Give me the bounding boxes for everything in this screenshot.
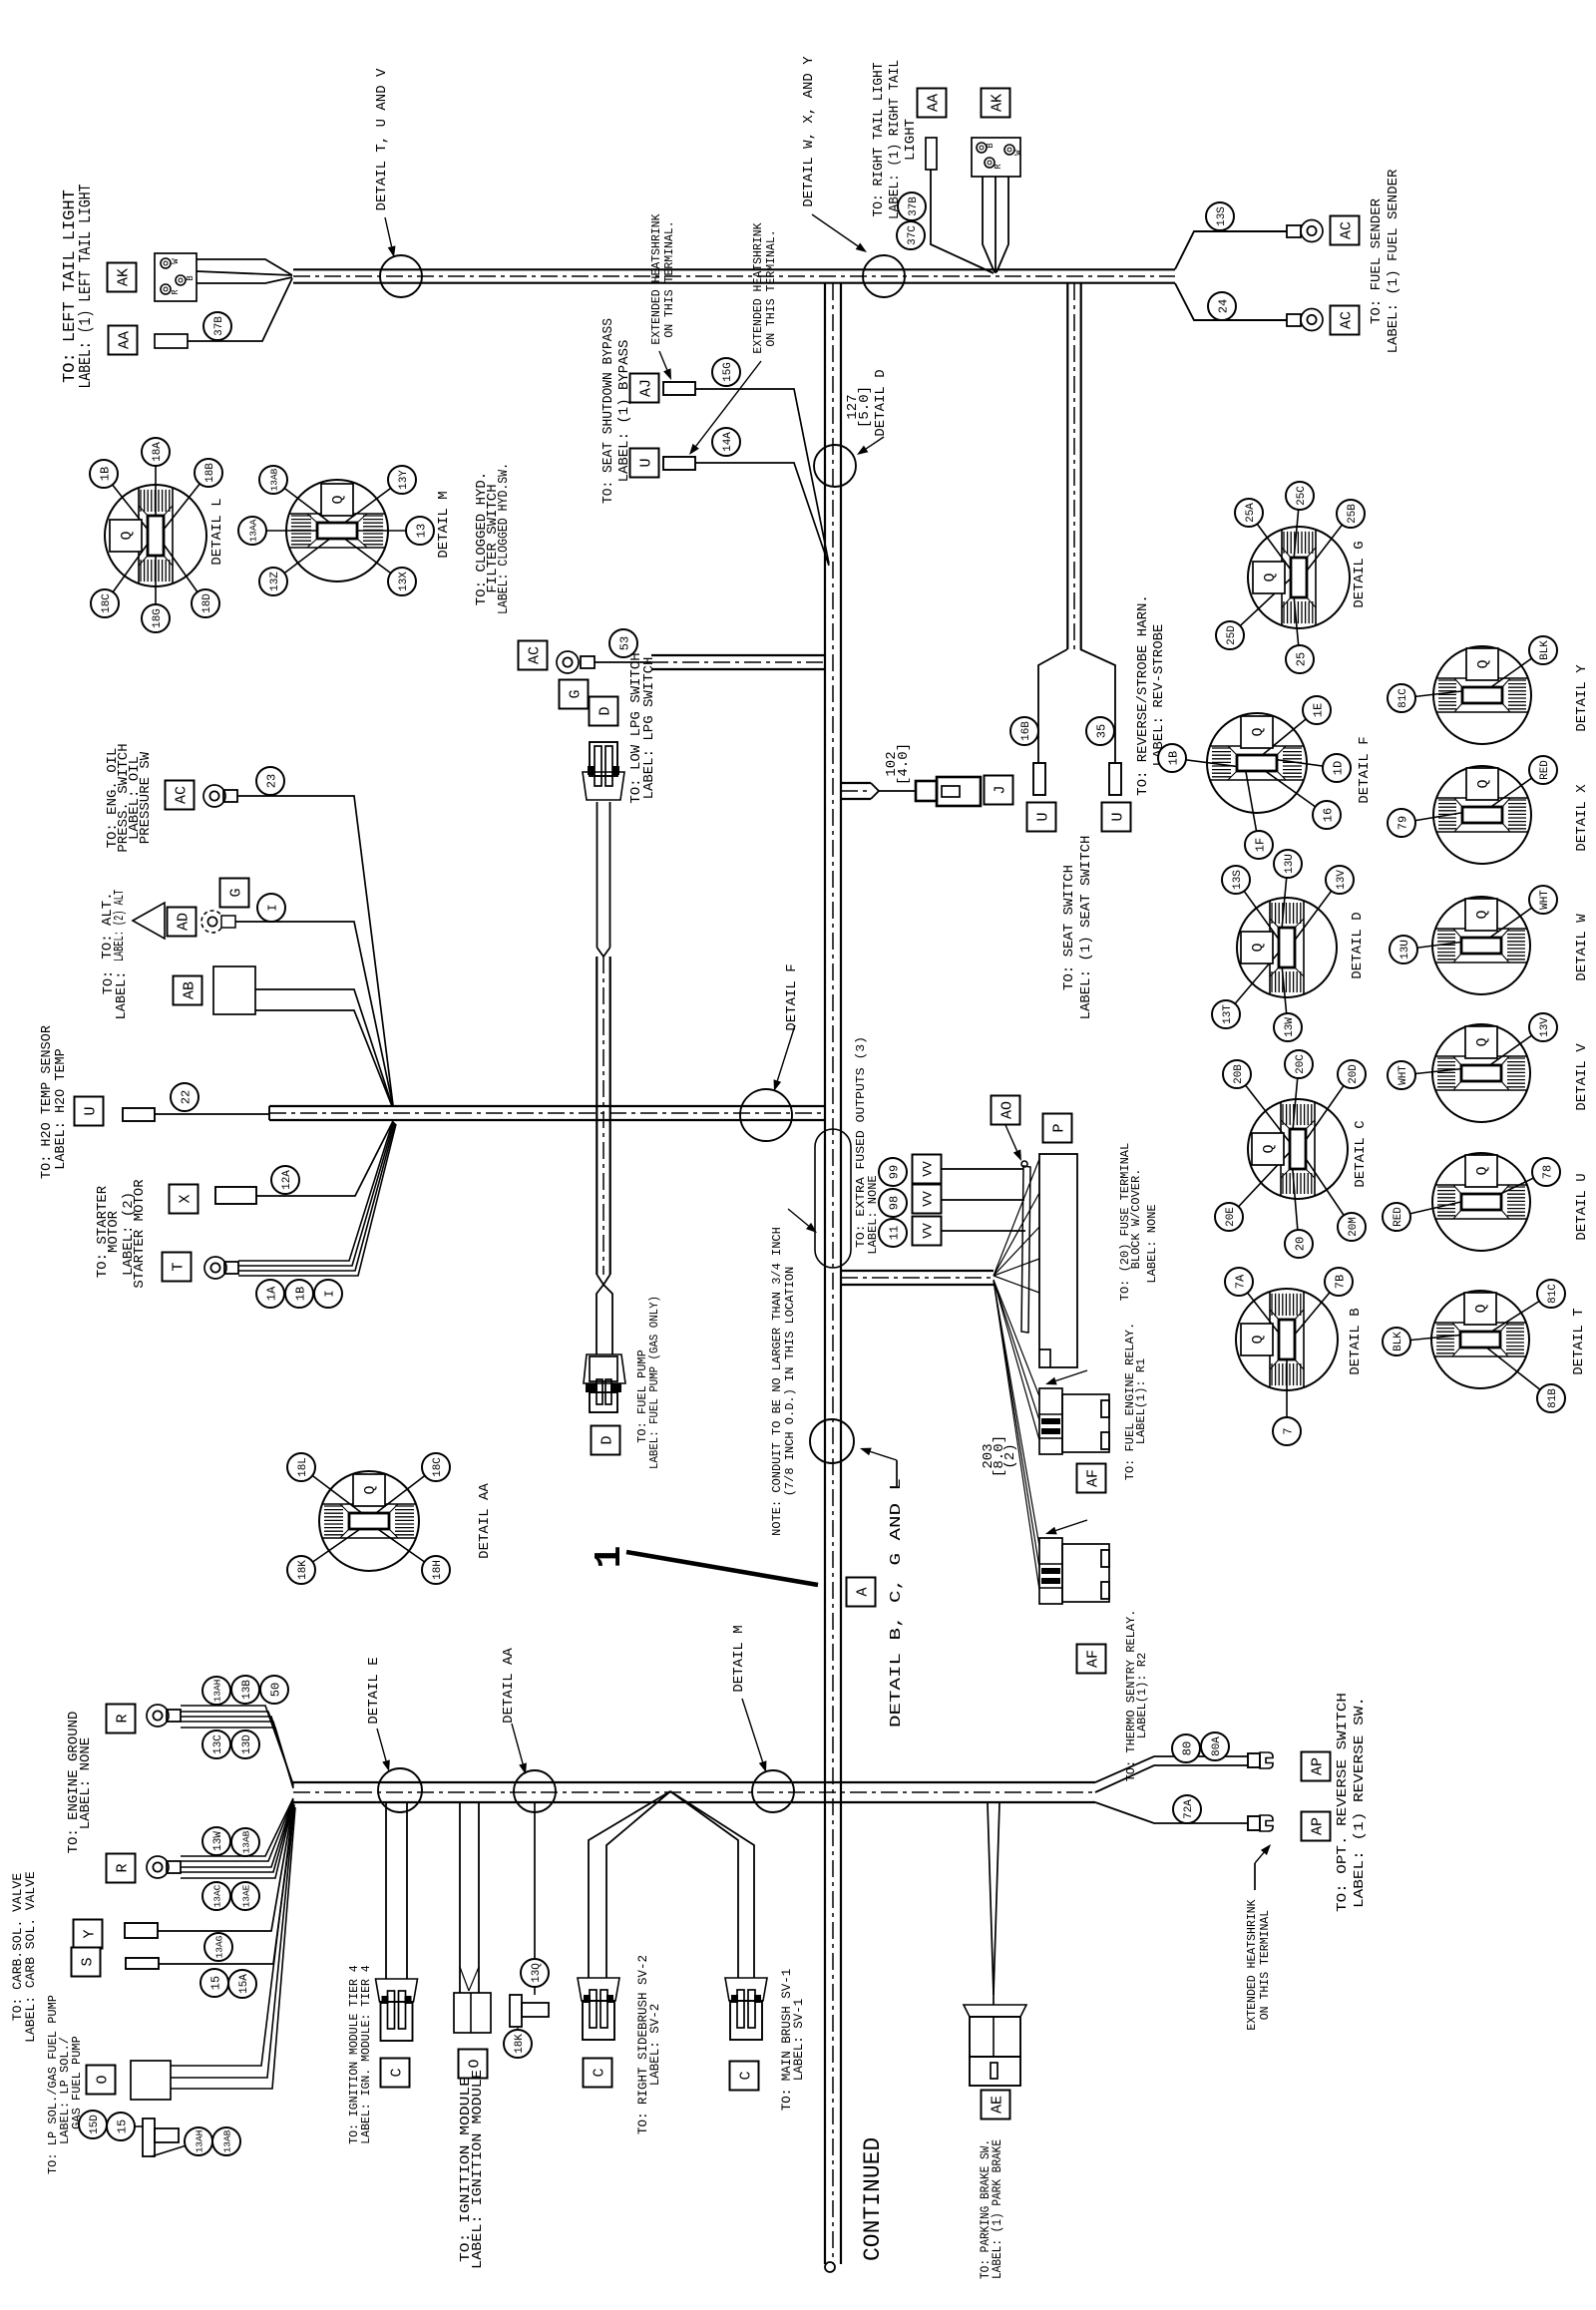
- svg-text:TO: FUEL SENDER: TO: FUEL SENDER: [1369, 197, 1385, 324]
- svg-text:12A: 12A: [281, 1170, 293, 1190]
- svg-text:78: 78: [1540, 1165, 1554, 1179]
- svg-text:AO: AO: [998, 1101, 1015, 1119]
- svg-text:72A: 72A: [1183, 1799, 1195, 1819]
- svg-text:AC: AC: [1338, 221, 1355, 239]
- svg-text:AF: AF: [1084, 1650, 1101, 1668]
- svg-text:DETAIL AA: DETAIL AA: [477, 1483, 493, 1559]
- svg-text:13S: 13S: [1216, 206, 1228, 226]
- svg-text:AP: AP: [1309, 1757, 1326, 1775]
- svg-text:18K: 18K: [514, 2034, 526, 2054]
- svg-text:13U: 13U: [1399, 940, 1411, 960]
- svg-text:1F: 1F: [1253, 838, 1267, 852]
- svg-text:13Z: 13Z: [269, 572, 281, 591]
- svg-text:1B: 1B: [1166, 751, 1180, 765]
- svg-text:LABEL: NONE: LABEL: NONE: [1145, 1204, 1159, 1283]
- svg-text:Q: Q: [1250, 1335, 1267, 1344]
- svg-text:BLOCK W/COVER.: BLOCK W/COVER.: [1129, 1169, 1143, 1270]
- svg-text:LABEL: H2O TEMP: LABEL: H2O TEMP: [54, 1048, 69, 1170]
- svg-text:11: 11: [887, 1226, 901, 1240]
- svg-text:TO: SEAT SHUTDOWN BYPASS: TO: SEAT SHUTDOWN BYPASS: [600, 318, 616, 504]
- svg-text:DETAIL B: DETAIL B: [1348, 1308, 1364, 1374]
- svg-text:C: C: [591, 2068, 607, 2077]
- svg-text:20M: 20M: [1348, 1217, 1360, 1237]
- svg-text:13V: 13V: [1336, 870, 1348, 890]
- svg-text:18B: 18B: [204, 463, 216, 483]
- svg-text:LABEL: LPG SWITCH: LABEL: LPG SWITCH: [641, 657, 657, 800]
- svg-text:13C: 13C: [212, 1734, 224, 1754]
- svg-text:STARTER MOTOR: STARTER MOTOR: [132, 1179, 148, 1289]
- svg-text:LABEL: (2) ALT: LABEL: (2) ALT: [112, 890, 128, 962]
- svg-text:U: U: [1109, 812, 1126, 821]
- svg-text:LABEL: IGNITION MODULE: LABEL: IGNITION MODULE: [470, 2070, 486, 2269]
- svg-text:LABEL(1): R2: LABEL(1): R2: [1135, 1653, 1149, 1738]
- svg-text:MOTOR: MOTOR: [106, 1210, 122, 1253]
- svg-text:25: 25: [1294, 652, 1308, 666]
- svg-text:20B: 20B: [1233, 1064, 1245, 1084]
- svg-text:DETAIL C: DETAIL C: [1353, 1120, 1369, 1187]
- svg-text:13U: 13U: [1284, 854, 1296, 874]
- svg-text:Q: Q: [119, 531, 136, 540]
- svg-text:EXTENDED HEATSHRINK: EXTENDED HEATSHRINK: [752, 222, 765, 353]
- svg-text:13AC: 13AC: [211, 1884, 222, 1907]
- svg-text:P: P: [1050, 1123, 1067, 1132]
- svg-text:WHT: WHT: [1397, 1065, 1409, 1085]
- svg-text:7A: 7A: [1233, 1274, 1247, 1289]
- svg-text:80A: 80A: [1211, 1736, 1223, 1756]
- svg-text:T: T: [170, 1262, 187, 1271]
- svg-text:R: R: [994, 164, 1003, 170]
- svg-text:22: 22: [179, 1090, 193, 1104]
- svg-text:DETAIL D: DETAIL D: [1350, 912, 1366, 978]
- svg-text:DETAIL V: DETAIL V: [1574, 1043, 1590, 1111]
- svg-text:Q: Q: [1475, 779, 1492, 788]
- svg-text:AC: AC: [173, 786, 190, 804]
- svg-text:X: X: [177, 1194, 194, 1203]
- svg-text:13AH: 13AH: [194, 2130, 204, 2153]
- svg-text:13Q: 13Q: [531, 1963, 543, 1983]
- svg-text:G: G: [567, 689, 584, 698]
- svg-text:DETAIL T: DETAIL T: [1571, 1308, 1587, 1374]
- svg-text:C: C: [388, 2068, 405, 2077]
- svg-text:20C: 20C: [1295, 1054, 1307, 1074]
- svg-text:15G: 15G: [722, 362, 734, 382]
- svg-text:80: 80: [1180, 1741, 1194, 1755]
- svg-text:13B: 13B: [241, 1680, 253, 1700]
- svg-text:U: U: [1034, 812, 1051, 821]
- svg-text:BLK: BLK: [1539, 640, 1551, 660]
- svg-text:[4.0]: [4.0]: [896, 743, 912, 785]
- svg-text:TO: OPT. REVERSE SWITCH: TO: OPT. REVERSE SWITCH: [1335, 1693, 1351, 1912]
- svg-text:VV: VV: [921, 1161, 936, 1177]
- svg-text:35: 35: [1094, 724, 1108, 738]
- svg-text:20: 20: [1293, 1237, 1307, 1251]
- svg-text:18H: 18H: [432, 1560, 444, 1580]
- svg-text:AA: AA: [925, 94, 942, 112]
- svg-text:O: O: [94, 2075, 111, 2084]
- svg-text:W: W: [171, 258, 181, 264]
- svg-text:EXTENDED HEATSHRINK: EXTENDED HEATSHRINK: [1246, 1899, 1259, 2030]
- svg-text:AC: AC: [1338, 311, 1355, 329]
- svg-text:13: 13: [414, 524, 428, 538]
- svg-text:25B: 25B: [1347, 504, 1359, 524]
- svg-text:LABEL: IGN. MODULE: TIER 4: LABEL: IGN. MODULE: TIER 4: [360, 1965, 373, 2144]
- svg-text:13X: 13X: [398, 572, 410, 591]
- svg-text:B: B: [186, 275, 196, 281]
- svg-text:DETAIL G: DETAIL G: [1352, 541, 1368, 607]
- svg-text:R: R: [171, 289, 181, 295]
- svg-text:15A: 15A: [238, 1974, 250, 1994]
- svg-text:13AA: 13AA: [247, 519, 258, 542]
- svg-text:LIGHT: LIGHT: [903, 119, 919, 161]
- svg-text:DETAIL T, U AND V: DETAIL T, U AND V: [374, 68, 390, 210]
- svg-text:DETAIL D: DETAIL D: [873, 369, 889, 436]
- svg-text:U: U: [637, 458, 654, 467]
- svg-text:LABEL: NONE: LABEL: NONE: [78, 1737, 94, 1829]
- svg-text:G: G: [227, 888, 244, 897]
- svg-text:13AB: 13AB: [240, 1830, 251, 1853]
- svg-text:ON THIS TERMINAL.: ON THIS TERMINAL.: [765, 229, 778, 346]
- svg-text:13AH: 13AH: [211, 1680, 222, 1703]
- svg-text:LABEL: CARB SOL. VALVE: LABEL: CARB SOL. VALVE: [23, 1871, 38, 2043]
- svg-text:98: 98: [887, 1196, 901, 1210]
- svg-text:Y: Y: [81, 1929, 98, 1938]
- svg-text:14A: 14A: [722, 432, 734, 452]
- svg-text:Q: Q: [1474, 1166, 1491, 1175]
- svg-text:18D: 18D: [201, 593, 213, 613]
- svg-text:1D: 1D: [1331, 761, 1345, 775]
- svg-text:16: 16: [1321, 808, 1335, 822]
- svg-text:81C: 81C: [1397, 688, 1409, 708]
- svg-text:LABEL(1): R1: LABEL(1): R1: [1134, 1358, 1148, 1444]
- svg-text:[5.0]: [5.0]: [857, 386, 873, 428]
- svg-text:LABEL: SV-1: LABEL: SV-1: [792, 1999, 806, 2082]
- svg-text:RED: RED: [1539, 760, 1551, 780]
- svg-text:7B: 7B: [1333, 1275, 1347, 1289]
- svg-text:13W: 13W: [1284, 1017, 1296, 1037]
- svg-text:J: J: [992, 785, 1008, 794]
- svg-text:1B: 1B: [293, 1287, 307, 1301]
- svg-text:Q: Q: [1250, 727, 1267, 736]
- svg-text:O: O: [466, 2059, 483, 2068]
- svg-text:13D: 13D: [241, 1734, 253, 1754]
- svg-text:Q: Q: [1474, 910, 1491, 919]
- svg-text:81C: 81C: [1547, 1284, 1559, 1304]
- svg-text:DETAIL M: DETAIL M: [731, 1625, 747, 1692]
- svg-text:DETAIL M: DETAIL M: [436, 491, 452, 558]
- svg-text:AA: AA: [116, 331, 133, 349]
- svg-text:BLK: BLK: [1393, 1332, 1404, 1351]
- svg-text:LABEL: CLOGGED HYD.SW.: LABEL: CLOGGED HYD.SW.: [496, 463, 512, 614]
- svg-text:W: W: [1013, 150, 1023, 156]
- svg-text:LABEL: NONE: LABEL: NONE: [866, 1175, 880, 1254]
- svg-text:A: A: [854, 1587, 871, 1596]
- svg-text:VV: VV: [921, 1191, 936, 1207]
- svg-text:DETAIL U: DETAIL U: [1574, 1173, 1590, 1240]
- svg-text:DETAIL W, X, AND Y: DETAIL W, X, AND Y: [801, 56, 817, 207]
- svg-text:LABEL: (1) REVERSE SW.: LABEL: (1) REVERSE SW.: [1352, 1697, 1368, 1908]
- svg-text:TO: RIGHT TAIL LIGHT: TO: RIGHT TAIL LIGHT: [871, 63, 887, 217]
- svg-text:Q: Q: [1474, 1037, 1491, 1046]
- svg-text:C: C: [737, 2071, 754, 2080]
- svg-text:37B: 37B: [908, 196, 920, 216]
- svg-text:53: 53: [617, 636, 631, 650]
- svg-text:WHT: WHT: [1539, 890, 1551, 910]
- svg-text:AK: AK: [115, 268, 132, 286]
- svg-text:Q: Q: [1475, 659, 1492, 668]
- svg-text:TO: SEAT SWITCH: TO: SEAT SWITCH: [1061, 865, 1077, 990]
- svg-text:1B: 1B: [98, 467, 112, 481]
- svg-text:Q: Q: [1262, 573, 1279, 581]
- svg-text:13S: 13S: [1232, 870, 1244, 890]
- svg-text:D: D: [598, 1435, 615, 1444]
- svg-text:DETAIL B, C, G AND L: DETAIL B, C, G AND L: [888, 1478, 905, 1728]
- svg-text:81B: 81B: [1547, 1388, 1559, 1408]
- svg-text:20E: 20E: [1225, 1207, 1237, 1227]
- svg-text:20D: 20D: [1348, 1064, 1360, 1084]
- svg-text:13AB: 13AB: [268, 468, 279, 491]
- svg-text:TO: REVERSE/STROBE HARN.: TO: REVERSE/STROBE HARN.: [1135, 594, 1151, 796]
- svg-text:18L: 18L: [297, 1457, 309, 1477]
- svg-text:18A: 18A: [152, 442, 164, 462]
- svg-text:13AG: 13AG: [213, 1935, 224, 1958]
- svg-text:DETAIL W: DETAIL W: [1574, 914, 1590, 981]
- svg-text:I: I: [265, 904, 279, 911]
- svg-text:DETAIL AA: DETAIL AA: [501, 1648, 517, 1724]
- svg-text:(2): (2): [1002, 1443, 1018, 1468]
- svg-text:Q: Q: [1473, 1304, 1490, 1313]
- svg-text:D: D: [597, 706, 613, 715]
- svg-text:RED: RED: [1393, 1207, 1404, 1227]
- svg-text:I: I: [322, 1290, 336, 1297]
- svg-text:Q: Q: [1261, 1144, 1278, 1153]
- svg-text:AK: AK: [989, 94, 1005, 112]
- svg-text:1: 1: [589, 1546, 631, 1569]
- svg-text:R: R: [114, 1714, 131, 1723]
- svg-text:ON THIS TERMINAL.: ON THIS TERMINAL.: [663, 220, 676, 337]
- svg-text:37B: 37B: [213, 316, 225, 336]
- svg-text:R: R: [114, 1863, 131, 1872]
- svg-text:50: 50: [268, 1683, 282, 1697]
- svg-text:13W: 13W: [212, 1831, 224, 1851]
- svg-text:7: 7: [1281, 1427, 1295, 1434]
- svg-text:25C: 25C: [1296, 486, 1308, 506]
- svg-text:15D: 15D: [89, 2115, 101, 2134]
- svg-text:CONTINUED: CONTINUED: [860, 2137, 886, 2261]
- svg-text:VV: VV: [921, 1223, 936, 1239]
- svg-text:Q: Q: [1250, 943, 1267, 952]
- svg-text:S: S: [79, 1957, 96, 1966]
- svg-text:B: B: [986, 143, 996, 149]
- svg-text:13AE: 13AE: [240, 1884, 251, 1907]
- svg-text:25D: 25D: [1226, 625, 1238, 645]
- svg-text:1A: 1A: [264, 1286, 278, 1301]
- svg-text:13AB: 13AB: [221, 2129, 232, 2152]
- svg-text:15: 15: [115, 2119, 129, 2133]
- svg-text:AJ: AJ: [637, 379, 654, 397]
- svg-text:18G: 18G: [152, 608, 164, 628]
- svg-text:LABEL: SV-2: LABEL: SV-2: [648, 2004, 662, 2087]
- svg-text:TO: H2O TEMP SENSOR: TO: H2O TEMP SENSOR: [40, 1025, 55, 1179]
- svg-text:18C: 18C: [101, 593, 113, 613]
- svg-text:Q: Q: [330, 495, 347, 504]
- svg-text:U: U: [82, 1106, 99, 1115]
- svg-text:LABEL: (1) PARK BRAKE: LABEL: (1) PARK BRAKE: [991, 2139, 1004, 2279]
- svg-text:24: 24: [1216, 299, 1230, 313]
- svg-text:DETAIL F: DETAIL F: [784, 963, 800, 1030]
- svg-text:LABEL: (1) LEFT TAIL LIGHT: LABEL: (1) LEFT TAIL LIGHT: [77, 185, 96, 389]
- svg-text:AB: AB: [181, 981, 198, 999]
- svg-text:NOTE: CONDUIT TO BE NO LARGER: NOTE: CONDUIT TO BE NO LARGER THAN 3/4 I…: [770, 1227, 784, 1536]
- svg-text:AP: AP: [1309, 1817, 1326, 1835]
- svg-text:37C: 37C: [907, 225, 919, 245]
- svg-text:AC: AC: [526, 646, 543, 664]
- svg-text:(7/8 INCH O.D.) IN THIS LOCATI: (7/8 INCH O.D.) IN THIS LOCATION: [783, 1267, 797, 1496]
- svg-text:15: 15: [208, 1976, 222, 1990]
- svg-text:18K: 18K: [297, 1560, 309, 1580]
- svg-text:LABEL: (1) RIGHT TAIL: LABEL: (1) RIGHT TAIL: [887, 60, 903, 219]
- svg-text:DETAIL X: DETAIL X: [1574, 784, 1590, 852]
- svg-text:AF: AF: [1084, 1469, 1101, 1487]
- svg-text:99: 99: [887, 1165, 901, 1179]
- svg-text:25A: 25A: [1245, 503, 1257, 523]
- svg-text:AE: AE: [989, 2096, 1005, 2114]
- svg-text:PRESSURE SW: PRESSURE SW: [138, 751, 154, 844]
- svg-text:LABEL:: LABEL:: [115, 971, 130, 1020]
- svg-text:18C: 18C: [432, 1457, 444, 1477]
- svg-text:23: 23: [264, 774, 278, 788]
- svg-text:LABEL: FUEL PUMP (GAS ONLY): LABEL: FUEL PUMP (GAS ONLY): [647, 1296, 661, 1469]
- svg-text:DETAIL F: DETAIL F: [1357, 736, 1373, 803]
- svg-text:13V: 13V: [1539, 1017, 1551, 1037]
- svg-text:LABEL: (1) FUEL SENDER: LABEL: (1) FUEL SENDER: [1386, 169, 1401, 353]
- svg-text:16B: 16B: [1020, 721, 1032, 741]
- svg-text:DETAIL Y: DETAIL Y: [1574, 664, 1590, 732]
- svg-text:EXTENDED HEATSHRINK: EXTENDED HEATSHRINK: [650, 213, 663, 344]
- svg-text:13T: 13T: [1222, 1004, 1234, 1024]
- svg-text:1E: 1E: [1311, 703, 1325, 717]
- svg-text:DETAIL E: DETAIL E: [366, 1657, 382, 1724]
- svg-text:79: 79: [1396, 816, 1409, 830]
- svg-text:ON THIS TERMINAL: ON THIS TERMINAL: [1259, 1910, 1272, 2021]
- svg-text:Q: Q: [362, 1485, 379, 1494]
- svg-text:AD: AD: [175, 913, 192, 931]
- svg-text:LABEL: (1) SEAT SWITCH: LABEL: (1) SEAT SWITCH: [1078, 836, 1094, 1020]
- svg-text:DETAIL L: DETAIL L: [209, 498, 225, 565]
- svg-text:13Y: 13Y: [398, 470, 410, 490]
